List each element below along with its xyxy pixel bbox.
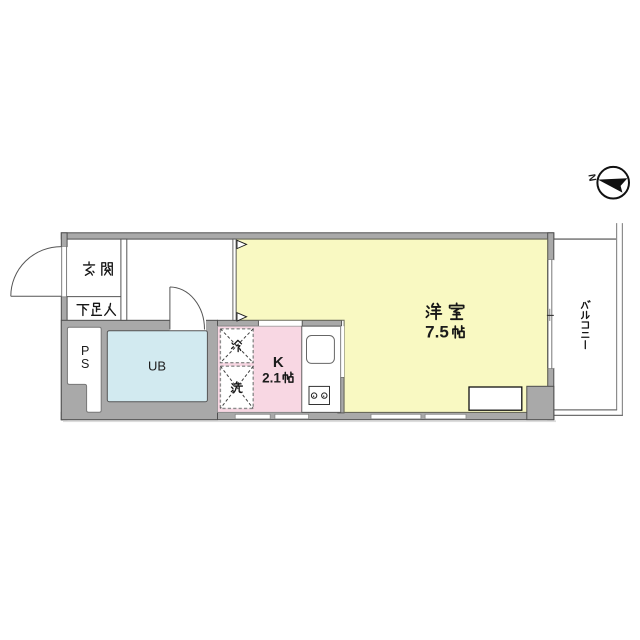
svg-text:UB: UB — [148, 358, 166, 373]
svg-text:7.5: 7.5 — [425, 322, 449, 341]
svg-text:K: K — [273, 354, 284, 371]
svg-text:2.1: 2.1 — [262, 371, 281, 386]
svg-text:S: S — [81, 357, 89, 371]
svg-text:P: P — [81, 344, 89, 358]
